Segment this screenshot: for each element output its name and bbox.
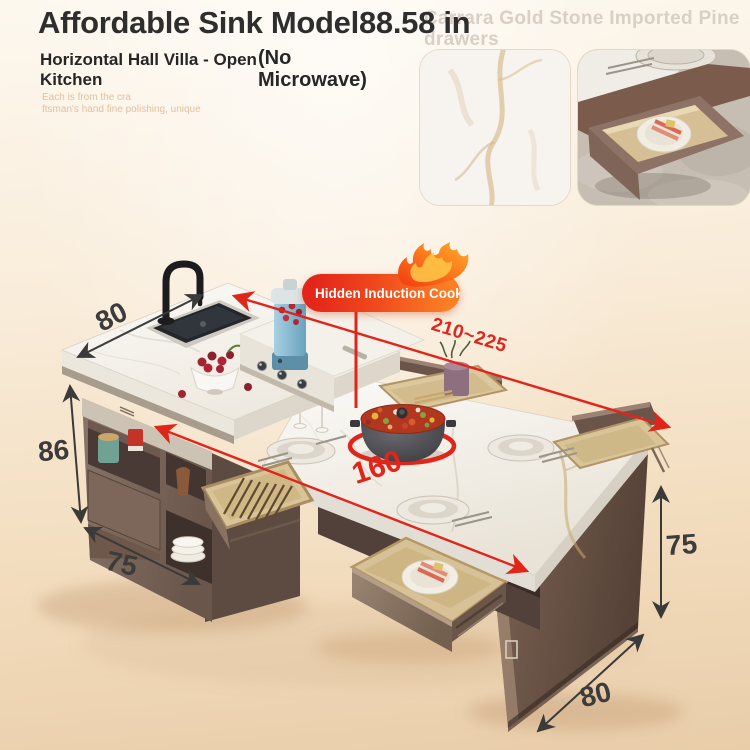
arrow-counter-depth xyxy=(78,295,202,357)
dimension-annotations xyxy=(0,0,750,750)
arrow-counter-height xyxy=(70,386,81,522)
flame-icon xyxy=(396,242,470,290)
arrow-total-length xyxy=(234,296,669,427)
dimension-counter-height: 86 xyxy=(37,434,71,469)
dimension-table-height: 75 xyxy=(665,528,698,562)
arrow-table-length xyxy=(156,427,527,571)
product-image: Carrara Gold Stone Imported Pine drawers… xyxy=(0,0,750,750)
